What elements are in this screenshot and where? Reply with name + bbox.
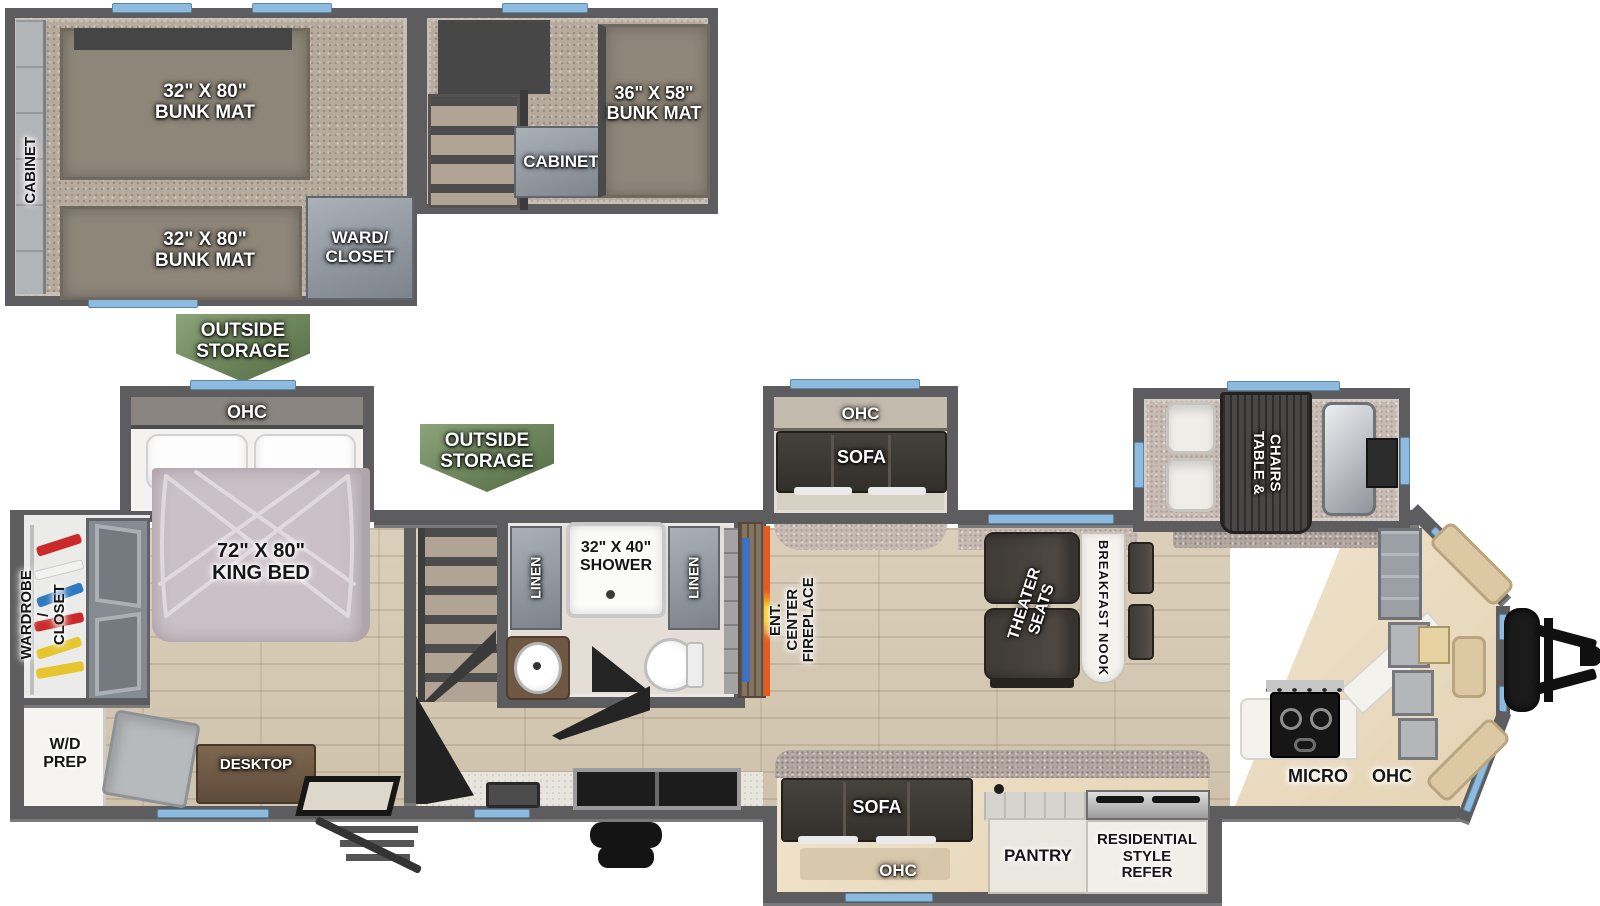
wardrobe-label-wrap: WARDROBE / CLOSET bbox=[14, 555, 74, 675]
wardrobe-closet-label: WARDROBE / CLOSET bbox=[19, 570, 69, 659]
sofa-footrest bbox=[798, 836, 858, 844]
tv bbox=[742, 538, 750, 682]
bedroom-ohc-label: OHC bbox=[131, 399, 363, 427]
loft-bunk-top-label: 32" X 80" BUNK MAT bbox=[115, 78, 295, 128]
rear-ohc-label: OHC bbox=[858, 856, 938, 886]
wall bbox=[24, 698, 150, 708]
hitch-jack bbox=[1544, 618, 1553, 702]
loft-window bbox=[502, 3, 588, 13]
dinette-window bbox=[1227, 381, 1340, 391]
wardrobe-door-panel bbox=[95, 524, 141, 608]
loft-cabinet-side-label-wrap: CABINET bbox=[2, 110, 60, 230]
refrigerator-top bbox=[1086, 790, 1210, 820]
desk-chair bbox=[295, 776, 401, 816]
wall bbox=[404, 528, 416, 806]
sofa-rear-label: SOFA bbox=[781, 788, 973, 828]
hitch-coupler bbox=[1580, 646, 1600, 666]
loft-window bbox=[252, 3, 332, 13]
outside-storage-label: OUTSIDE STORAGE bbox=[440, 431, 534, 492]
burner bbox=[1310, 708, 1332, 730]
ent-center-shelves bbox=[724, 528, 738, 694]
rv-floorplan: CABINET 32" X 80" BUNK MAT 32" X 80" BUN… bbox=[0, 0, 1600, 906]
theater-seat-base bbox=[990, 678, 1074, 688]
nose-bench bbox=[1452, 636, 1486, 698]
shower-label: 32" X 40" SHOWER bbox=[566, 530, 666, 584]
ent-center-label: ENT. CENTER FIREPLACE bbox=[767, 577, 817, 662]
entry-stairwell bbox=[573, 768, 741, 810]
pantry-knob bbox=[994, 784, 1004, 794]
micro-label: MICRO bbox=[1276, 762, 1360, 792]
loft-cabinet: CABINET bbox=[514, 126, 608, 198]
linen-cabinet-right: LINEN bbox=[668, 526, 720, 630]
linen-left-label: LINEN bbox=[528, 557, 543, 599]
wall bbox=[1208, 806, 1222, 906]
pantry-counter bbox=[984, 792, 1090, 820]
sofa-footrest bbox=[876, 836, 936, 844]
refrigerator-handle bbox=[1096, 796, 1144, 803]
sofa-slide-ohc-label: OHC bbox=[774, 399, 947, 429]
kitchen-tall-cabinet bbox=[1378, 528, 1422, 620]
desktop-label: DESKTOP bbox=[196, 748, 316, 782]
entry-step bbox=[598, 846, 654, 868]
dinette-table: TABLE & CHAIRS bbox=[1220, 392, 1312, 534]
wall bbox=[1208, 806, 1460, 822]
linen-right-label: LINEN bbox=[686, 557, 701, 599]
breakfast-nook-table: BREAKFAST NOOK bbox=[1080, 532, 1126, 684]
loft-bunk-top-shelf bbox=[74, 28, 292, 50]
entry-mat bbox=[486, 782, 540, 808]
nose-table bbox=[1418, 626, 1450, 664]
faucet bbox=[533, 662, 541, 670]
shower-drain bbox=[606, 590, 615, 599]
entry-step bbox=[590, 822, 662, 848]
stairwell-divider bbox=[655, 772, 659, 806]
loft-cabinet-side-label: CABINET bbox=[23, 137, 40, 204]
sofa-footrest bbox=[868, 487, 926, 495]
wall bbox=[763, 806, 777, 906]
pantry-label: PANTRY bbox=[988, 836, 1088, 876]
nook-chair bbox=[1128, 542, 1154, 594]
loft-stairs bbox=[428, 94, 520, 208]
dinette-window-frame bbox=[1366, 438, 1398, 488]
loft-bunk-bottom-label: 32" X 80" BUNK MAT bbox=[115, 226, 295, 276]
theater-seats-label: THEATER SEATS bbox=[1005, 566, 1061, 648]
sofa-footrest bbox=[794, 487, 852, 495]
dinette-side-window bbox=[1400, 437, 1410, 485]
king-slide-window bbox=[190, 380, 296, 390]
window bbox=[988, 514, 1114, 524]
loft-window bbox=[112, 3, 192, 13]
loft-cabinet-label: CABINET bbox=[523, 153, 599, 172]
dinette-label: TABLE & CHAIRS bbox=[1250, 431, 1283, 495]
dinette-chair bbox=[1166, 458, 1216, 512]
loft-stair-landing bbox=[438, 20, 550, 94]
linen-cabinet-left: LINEN bbox=[510, 526, 562, 630]
wd-prep-label: W/D PREP bbox=[24, 726, 106, 782]
sofa-slide-window bbox=[790, 379, 920, 389]
king-bed-label: 72" X 80" KING BED bbox=[152, 532, 370, 592]
dinette-side-window bbox=[1134, 442, 1144, 488]
kitchen-cabinet bbox=[1398, 718, 1438, 760]
window bbox=[845, 893, 933, 902]
breakfast-nook-label: BREAKFAST NOOK bbox=[1096, 540, 1110, 676]
window bbox=[474, 809, 530, 818]
refrigerator-label: RESIDENTIAL STYLE REFER bbox=[1086, 824, 1208, 890]
wardrobe-door-panel bbox=[95, 612, 141, 696]
nook-chair bbox=[1128, 604, 1154, 660]
dinette-chair bbox=[1166, 402, 1216, 454]
sofa-top-label: SOFA bbox=[776, 438, 947, 478]
wardrobe-doors bbox=[86, 518, 150, 702]
stove bbox=[1270, 692, 1340, 758]
loft-ward-closet-label: WARD/ CLOSET bbox=[326, 229, 395, 266]
refrigerator-handle bbox=[1152, 796, 1200, 803]
kitchen-cabinet bbox=[1392, 670, 1434, 716]
toilet-tank bbox=[686, 642, 704, 688]
wall bbox=[763, 892, 1222, 906]
burner bbox=[1294, 738, 1316, 752]
window bbox=[157, 809, 269, 818]
loft-ward-closet: WARD/ CLOSET bbox=[306, 196, 414, 300]
outside-storage-label: OUTSIDE STORAGE bbox=[196, 321, 290, 382]
outside-storage-badge: OUTSIDE STORAGE bbox=[176, 314, 310, 382]
burner bbox=[1280, 708, 1302, 730]
ent-center-label-wrap: ENT. CENTER FIREPLACE bbox=[764, 535, 820, 705]
rear-counter bbox=[775, 750, 1210, 778]
outside-storage-badge: OUTSIDE STORAGE bbox=[420, 424, 554, 492]
kitchen-ohc-label: OHC bbox=[1360, 762, 1424, 792]
stove-knobs bbox=[1266, 680, 1344, 692]
loft-bunk-right-label: 36" X 58" BUNK MAT bbox=[600, 78, 708, 130]
propane-cover bbox=[1504, 608, 1540, 712]
bedroom-chair bbox=[101, 709, 201, 809]
